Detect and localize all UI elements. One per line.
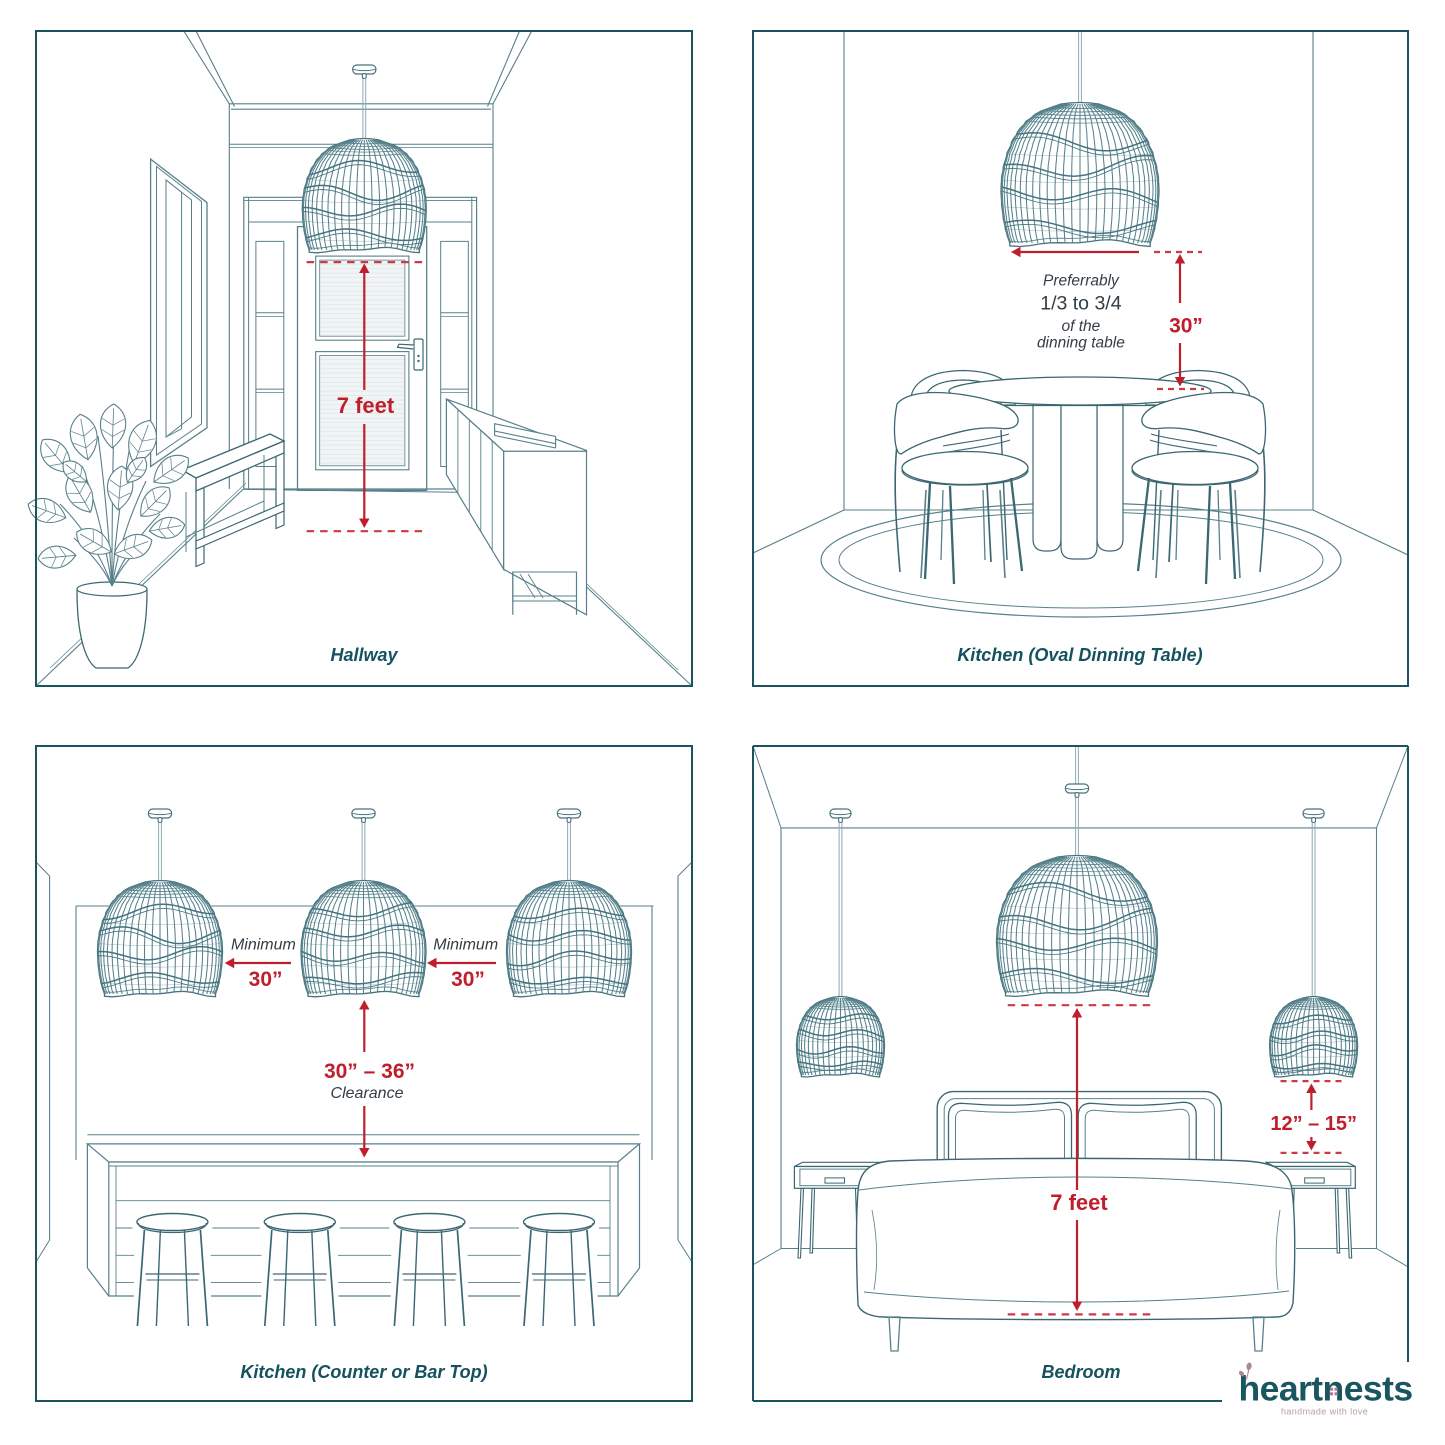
svg-text:30”: 30”	[249, 968, 283, 991]
svg-text:12” – 15”: 12” – 15”	[1270, 1113, 1357, 1135]
svg-text:Minimum: Minimum	[433, 937, 498, 954]
svg-text:Minimum: Minimum	[231, 937, 296, 954]
svg-text:handmade with love: handmade with love	[1281, 1407, 1368, 1417]
svg-text:7 feet: 7 feet	[1050, 1190, 1108, 1215]
svg-text:heartnests: heartnests	[1239, 1369, 1413, 1409]
svg-text:30” – 36”: 30” – 36”	[324, 1060, 415, 1083]
svg-text:7 feet: 7 feet	[337, 393, 395, 418]
svg-text:1/3 to 3/4: 1/3 to 3/4	[1040, 292, 1121, 314]
svg-text:30”: 30”	[451, 968, 485, 991]
svg-text:Hallway: Hallway	[330, 645, 398, 665]
svg-text:of the: of the	[1062, 318, 1101, 335]
svg-text:Preferrably: Preferrably	[1043, 273, 1120, 290]
svg-text:Kitchen (Counter or Bar Top): Kitchen (Counter or Bar Top)	[240, 1362, 487, 1382]
svg-text:dinning table: dinning table	[1037, 335, 1125, 352]
svg-text:Kitchen (Oval Dinning Table): Kitchen (Oval Dinning Table)	[957, 645, 1202, 665]
svg-text:Bedroom: Bedroom	[1041, 1362, 1120, 1382]
svg-text:Clearance: Clearance	[331, 1085, 404, 1102]
svg-text:30”: 30”	[1169, 314, 1203, 337]
